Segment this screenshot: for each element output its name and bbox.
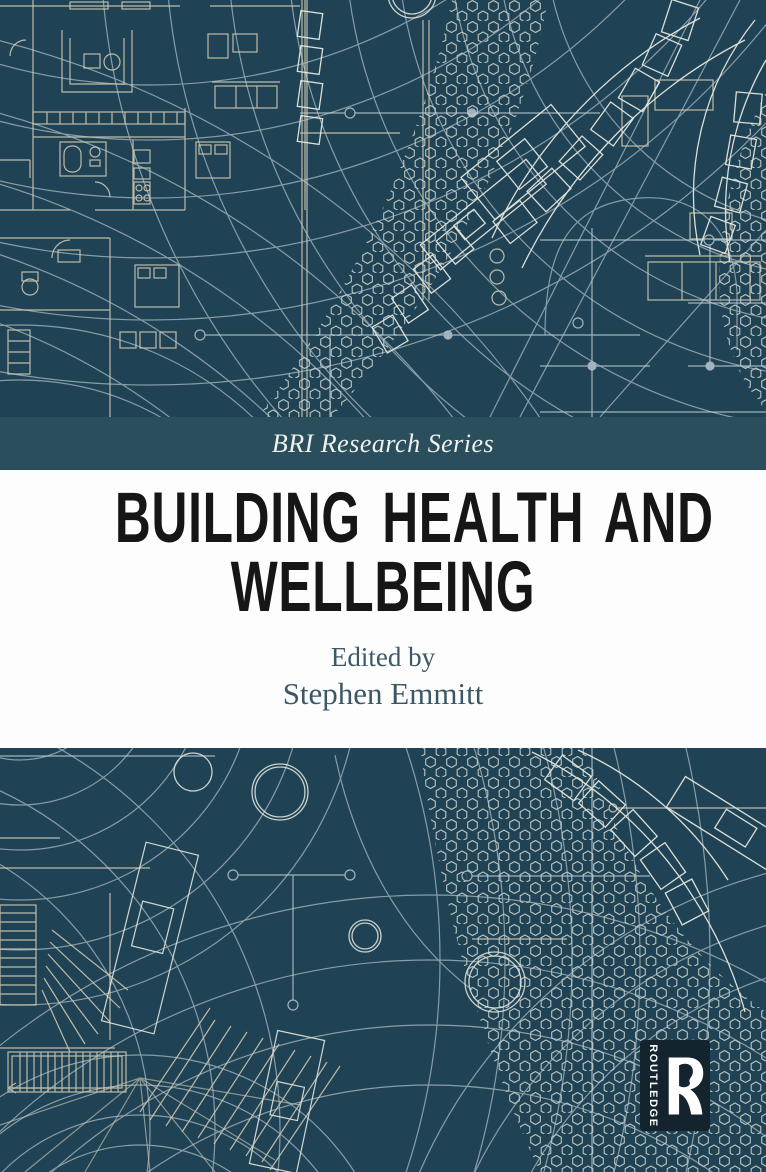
routledge-logo: ROUTLEDGE: [640, 1040, 710, 1131]
routledge-wordmark: ROUTLEDGE: [647, 1044, 659, 1127]
edited-by-label: Edited by: [0, 640, 766, 674]
book-title: BUILDING HEALTH AND WELLBEING: [0, 470, 766, 622]
series-band: BRI Research Series: [0, 417, 766, 470]
editor-name: Stephen Emmitt: [0, 674, 766, 714]
book-cover: BRI Research Series BUILDING HEALTH AND …: [0, 0, 766, 1172]
series-label: BRI Research Series: [272, 429, 494, 459]
title-line-1: BUILDING HEALTH AND: [115, 484, 651, 553]
byline: Edited by Stephen Emmitt: [0, 640, 766, 714]
routledge-r-head-icon: [667, 1054, 705, 1118]
title-line-2: WELLBEING: [115, 553, 651, 622]
title-panel: BUILDING HEALTH AND WELLBEING Edited by …: [0, 470, 766, 748]
